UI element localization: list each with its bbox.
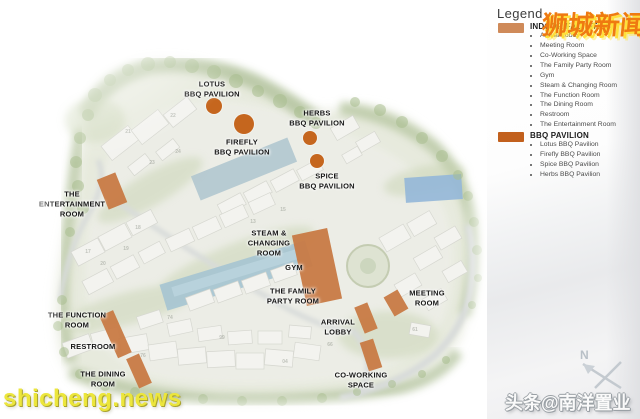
map-label-arrival-lobby: ARRIVALLOBBY [321,317,355,337]
legend-item: Lotus BBQ Pavilion [540,141,618,149]
legend-swatch [498,23,524,33]
legend-section-heading: BBQ PAVILION [530,131,589,140]
legend-item: The Function Room [540,92,618,100]
legend-item: The Family Party Room [540,62,618,70]
herbs-bbq-pavilion-marker [303,131,317,145]
legend-item: Co-Working Space [540,52,618,60]
legend-item-list: Lotus BBQ PavilionFirefly BBQ PavilionSp… [530,141,618,181]
legend-item: Spice BBQ Pavilion [540,161,618,169]
legend-item: Firefly BBQ Pavilion [540,151,618,159]
legend-item: Herbs BBQ Pavilion [540,171,618,179]
map-label-herbs-bbq-pavilion: HERBSBBQ PAVILION [289,108,344,128]
watermark-toutiao: 头条@南洋置业 [505,389,631,415]
map-label-the-entertainment-room: THEENTERTAINMENTROOM [39,189,105,218]
unit-number: 74 [167,315,173,321]
map-label-co-working-space: CO-WORKINGSPACE [335,370,388,390]
unit-number: 76 [140,353,146,359]
map-label-lotus-bbq-pavilion: LOTUSBBQ PAVILION [184,79,239,99]
firefly-bbq-pavilion-marker [234,114,254,134]
legend-item-list: Arrival LobbyMeeting RoomCo-Working Spac… [530,32,618,131]
map-label-gym: GYM [285,263,303,273]
site-plan-page: LOTUSBBQ PAVILIONFIREFLYBBQ PAVILIONHERB… [0,0,640,419]
watermark-shicheng-news: shicheng.news [3,385,182,413]
unit-number: 13 [250,219,256,225]
map-label-the-family-party-room: THE FAMILYPARTY ROOM [267,286,319,306]
legend-item: Steam & Changing Room [540,82,618,90]
legend-item: Gym [540,72,618,80]
unit-number: 99 [219,335,225,341]
lotus-bbq-pavilion-marker [206,98,222,114]
legend-title: Legend [497,6,543,21]
unit-number: 61 [412,327,418,333]
map-label-spice-bbq-pavilion: SPICEBBQ PAVILION [299,171,354,191]
map-label-the-function-room: THE FUNCTIONROOM [48,310,106,330]
map-label-firefly-bbq-pavilion: FIREFLYBBQ PAVILION [214,137,269,157]
legend-item: Restroom [540,111,618,119]
unit-number: 18 [135,225,141,231]
unit-number: 66 [327,342,333,348]
map-label-meeting-room: MEETINGROOM [409,288,445,308]
compass-north-label: N [580,348,589,362]
unit-number: 23 [149,160,155,166]
unit-number: 22 [170,113,176,119]
unit-number: 21 [125,129,131,135]
spice-bbq-pavilion-marker [310,154,324,168]
map-label-layer: LOTUSBBQ PAVILIONFIREFLYBBQ PAVILIONHERB… [0,0,487,419]
unit-number: 15 [280,207,286,213]
legend-item: Meeting Room [540,42,618,50]
unit-number: 19 [123,246,129,252]
unit-number: 04 [282,359,288,365]
unit-number: 17 [85,249,91,255]
compass: N [575,348,633,394]
map-label-restroom: RESTROOM [71,342,116,352]
legend-item: The Dining Room [540,101,618,109]
legend-swatch [498,132,524,142]
legend-item: The Entertainment Room [540,121,618,129]
watermark-shicheng-cn: 狮城新闻 [540,5,640,42]
unit-number: 20 [100,261,106,267]
map-label-steam-changing-room: STEAM &CHANGINGROOM [248,228,290,257]
unit-number: 24 [175,149,181,155]
site-plan-map: LOTUSBBQ PAVILIONFIREFLYBBQ PAVILIONHERB… [0,0,487,419]
